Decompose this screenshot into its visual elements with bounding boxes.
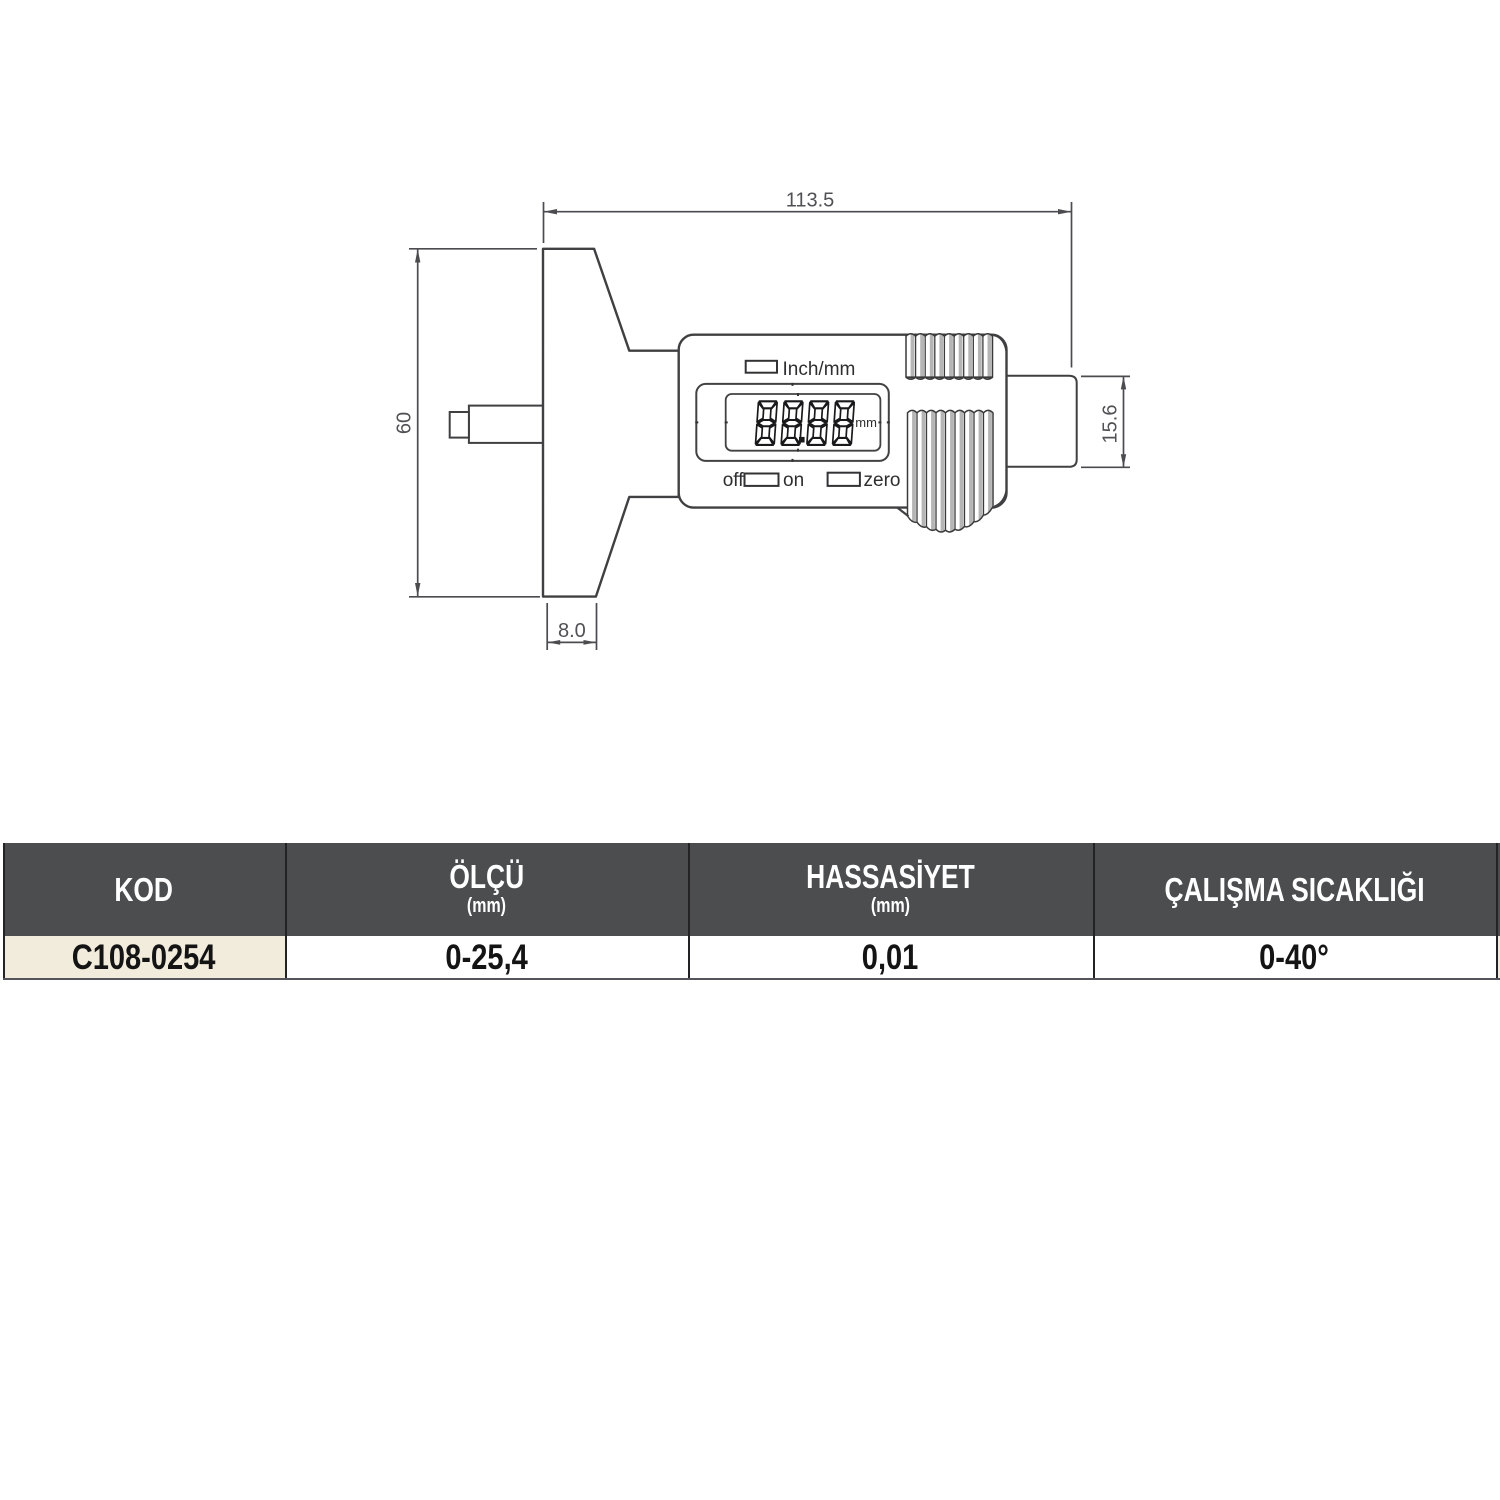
svg-text:mm: mm [855,415,877,430]
svg-text:on: on [783,470,804,491]
svg-text:Inch/mm: Inch/mm [783,359,856,380]
svg-text:113.5: 113.5 [786,190,835,212]
svg-text:zero: zero [864,470,901,491]
svg-text:off: off [723,470,745,491]
svg-text:60: 60 [394,412,416,434]
svg-text:15.6: 15.6 [1100,405,1122,444]
svg-text:8.0: 8.0 [558,620,586,642]
